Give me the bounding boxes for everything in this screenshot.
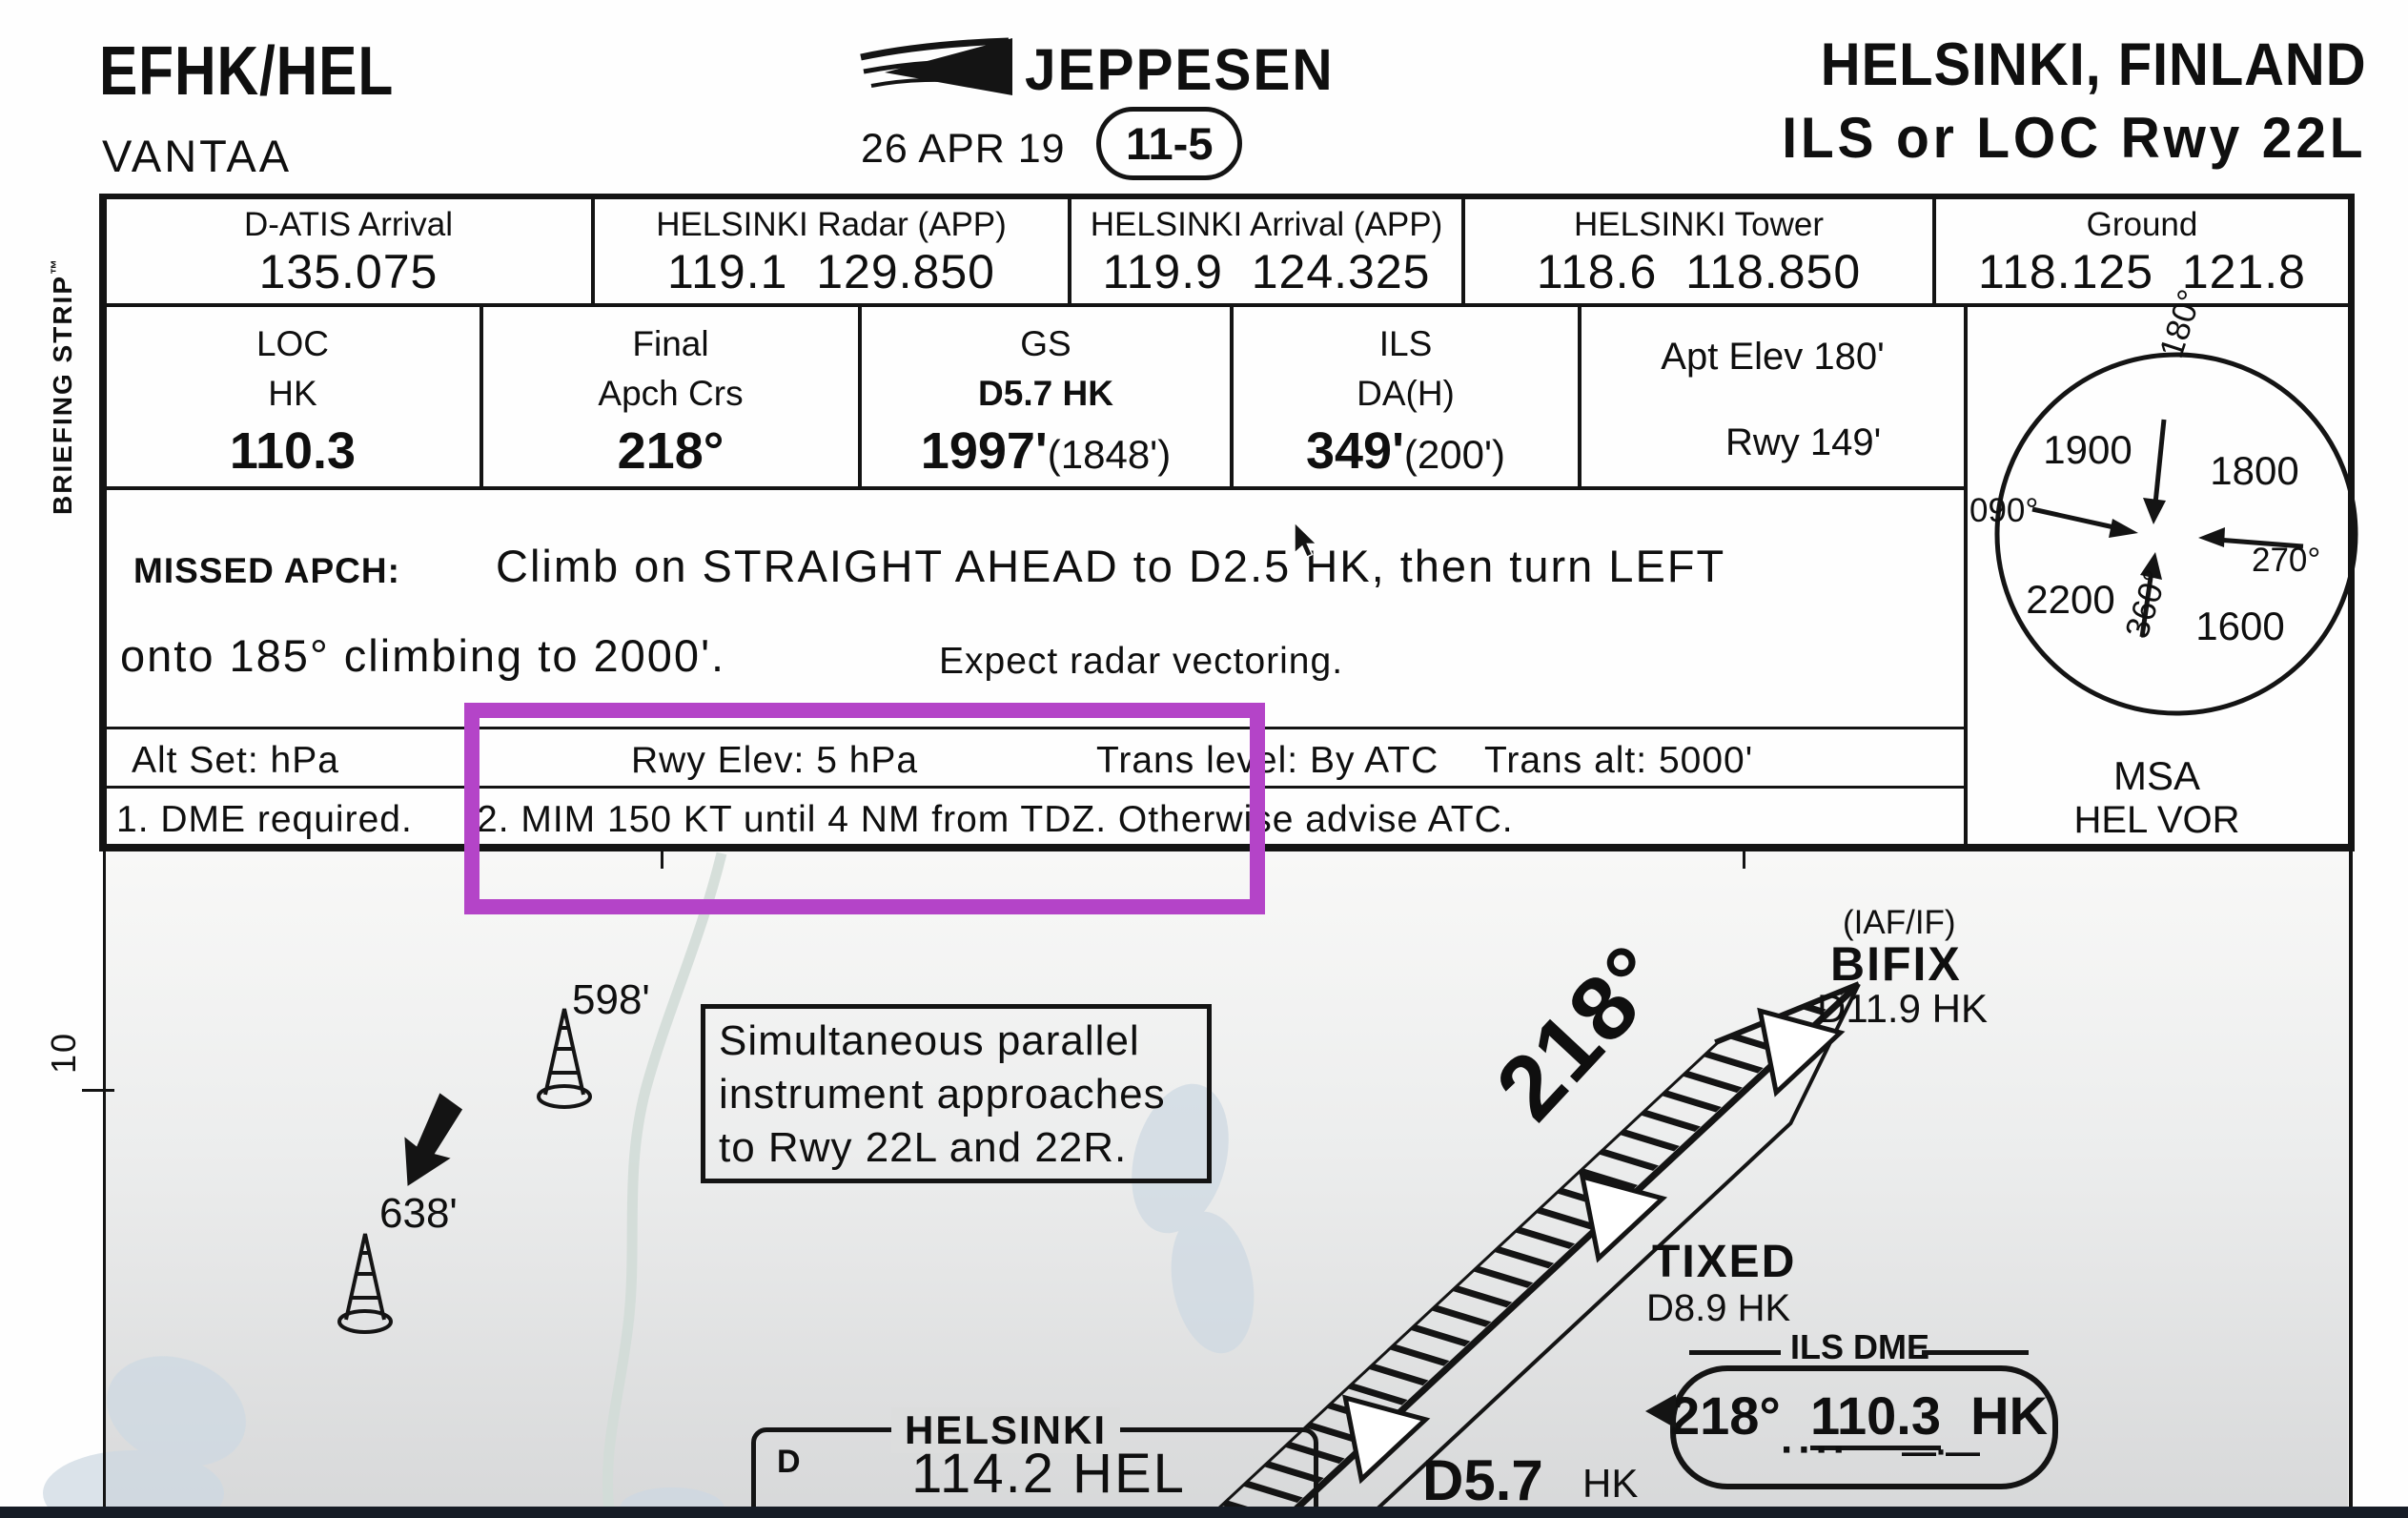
gs-altitude-agl: (1848') (1048, 432, 1171, 477)
obstacle-arrow-icon (385, 1088, 476, 1198)
vor-frequency: 114.2 HEL (829, 1442, 1268, 1506)
note-1: 1. DME required. (116, 799, 413, 841)
airport-identifier: EFHK/HEL (99, 32, 394, 111)
annotation-highlight-box (464, 703, 1265, 914)
ilsdme-value: 218° 110.3 HK (1670, 1385, 2047, 1446)
scale-marker-10: 10 (44, 1032, 84, 1074)
sim-note-line3: to Rwy 22L and 22R. (719, 1121, 1207, 1175)
obstacle-598-label: 598' (572, 976, 650, 1024)
mouse-cursor (1293, 521, 1331, 564)
ilsdme-label: ILS DME (1790, 1327, 1929, 1367)
divider-msa-column (1964, 307, 1968, 844)
border-top (99, 194, 2355, 199)
briefing-strip-label: BRIEFING STRIP™ (48, 257, 78, 515)
chart-date: 26 APR 19 (861, 126, 1066, 173)
sim-note-line2: instrument approaches (719, 1068, 1207, 1121)
scale-tick-line (82, 1089, 114, 1092)
comm-label-ground: Ground (1936, 206, 2348, 244)
gs-altitude: 1997'(1848') (862, 421, 1230, 481)
capsule-pointer-icon (1645, 1392, 1678, 1430)
missed-apch-label: MISSED APCH: (133, 551, 400, 591)
msa-radial-090: 090° (1969, 492, 2038, 530)
comm-label-arrival: HELSINKI Arrival (APP) (1071, 206, 1461, 244)
procedure-title: ILS or LOC Rwy 22L (1782, 105, 2366, 171)
rwy-elev: Rwy 149' (1725, 421, 1964, 464)
trademark-symbol: ™ (50, 257, 66, 275)
ilsdme-line-right (1922, 1350, 2029, 1355)
tower-icon-638 (339, 1234, 391, 1332)
comm-value-radar: 119.1 129.850 (595, 244, 1068, 299)
msa-sector-se: 1600 (2183, 604, 2297, 649)
approach-chart-page: EFHK/HEL VANTAA JEPPESEN 26 APR 19 11-5 … (0, 0, 2408, 1518)
gs-row1: GS (862, 324, 1230, 364)
ilsdme-course: 218° (1670, 1385, 1781, 1446)
screen-bottom-strip (0, 1507, 2408, 1518)
airport-city: VANTAA (102, 130, 292, 182)
morse-h: ∙∙∙∙ (1781, 1426, 1850, 1474)
ils-da: 349'(200') (1234, 421, 1578, 481)
chart-region-title: HELSINKI, FINLAND (1820, 31, 2366, 99)
divider-briefing-bottom (106, 486, 1964, 490)
final-row1: Final (483, 324, 858, 364)
comm-value-arrival: 119.9 124.325 (1071, 244, 1461, 299)
comm-label-tower: HELSINKI Tower (1465, 206, 1932, 244)
river (607, 853, 722, 1518)
bifix-name: BIFIX (1830, 936, 1962, 992)
plan-tick-3 (1743, 851, 1745, 869)
border-left-thin (103, 851, 106, 1518)
jeppesen-logo-swoosh (861, 38, 1012, 95)
comm-value-ground: 118.125 121.8 (1936, 244, 2348, 299)
final-row2: Apch Crs (483, 374, 858, 414)
obstacle-638-label: 638' (379, 1190, 458, 1238)
border-right-thick (2348, 194, 2355, 851)
chart-index-number: 11-5 (1096, 107, 1242, 180)
missed-apch-note: Expect radar vectoring. (939, 641, 1343, 683)
trans-alt: Trans alt: 5000' (1484, 740, 1753, 782)
missed-apch-line1: Climb on STRAIGHT AHEAD to D2.5 HK, then… (496, 540, 1725, 592)
msa-radial-270: 270° (2252, 542, 2320, 580)
comm-value-tower: 118.6 118.850 (1465, 244, 1932, 299)
loc-row2: HK (106, 374, 480, 414)
final-course: 218° (483, 421, 858, 481)
d57-ident: HK (1582, 1461, 1638, 1507)
msa-title: MSA (2069, 753, 2245, 799)
divider-brief-4 (1578, 307, 1582, 486)
ilsdme-line-left (1689, 1350, 1781, 1355)
msa-vor: HEL VOR (2069, 799, 2245, 842)
loc-row1: LOC (106, 324, 480, 364)
msa-sector-ne: 1800 (2197, 448, 2312, 494)
apt-elev: Apt Elev 180' (1582, 336, 1964, 379)
gs-row2: D5.7 HK (862, 374, 1230, 414)
ils-da-agl: (200') (1404, 432, 1505, 477)
divider-comm-bottom (106, 303, 2348, 307)
border-right-thin (2349, 851, 2353, 1507)
bifix-dme: D11.9 HK (1817, 986, 1988, 1032)
msa-sector-nw: 1900 (2030, 427, 2145, 473)
tixed-name: TIXED (1652, 1236, 1796, 1288)
msa-rose (1997, 355, 2356, 713)
d57-fix: D5.7 (1422, 1447, 1543, 1513)
jeppesen-brand: JEPPESEN (1025, 36, 1335, 103)
ils-row1: ILS (1234, 324, 1578, 364)
alt-set: Alt Set: hPa (132, 740, 339, 782)
ilsdme-ident: HK (1970, 1385, 2048, 1446)
morse-k: —∙— (1902, 1432, 1980, 1472)
comm-label-radar: HELSINKI Radar (APP) (595, 206, 1068, 244)
sim-note-line1: Simultaneous parallel (719, 1015, 1207, 1068)
comm-value-atis: 135.075 (106, 244, 591, 299)
simultaneous-approach-note: Simultaneous parallel instrument approac… (701, 1004, 1212, 1183)
vor-dme-symbol: D (777, 1444, 801, 1481)
loc-freq: 110.3 (106, 421, 480, 481)
msa-sector-sw: 2200 (2013, 577, 2128, 623)
missed-apch-line2: onto 185° climbing to 2000'. (120, 629, 725, 682)
comm-label-atis: D-ATIS Arrival (106, 206, 591, 244)
tixed-dme: D8.9 HK (1646, 1287, 1790, 1330)
ils-row2: DA(H) (1234, 374, 1578, 414)
